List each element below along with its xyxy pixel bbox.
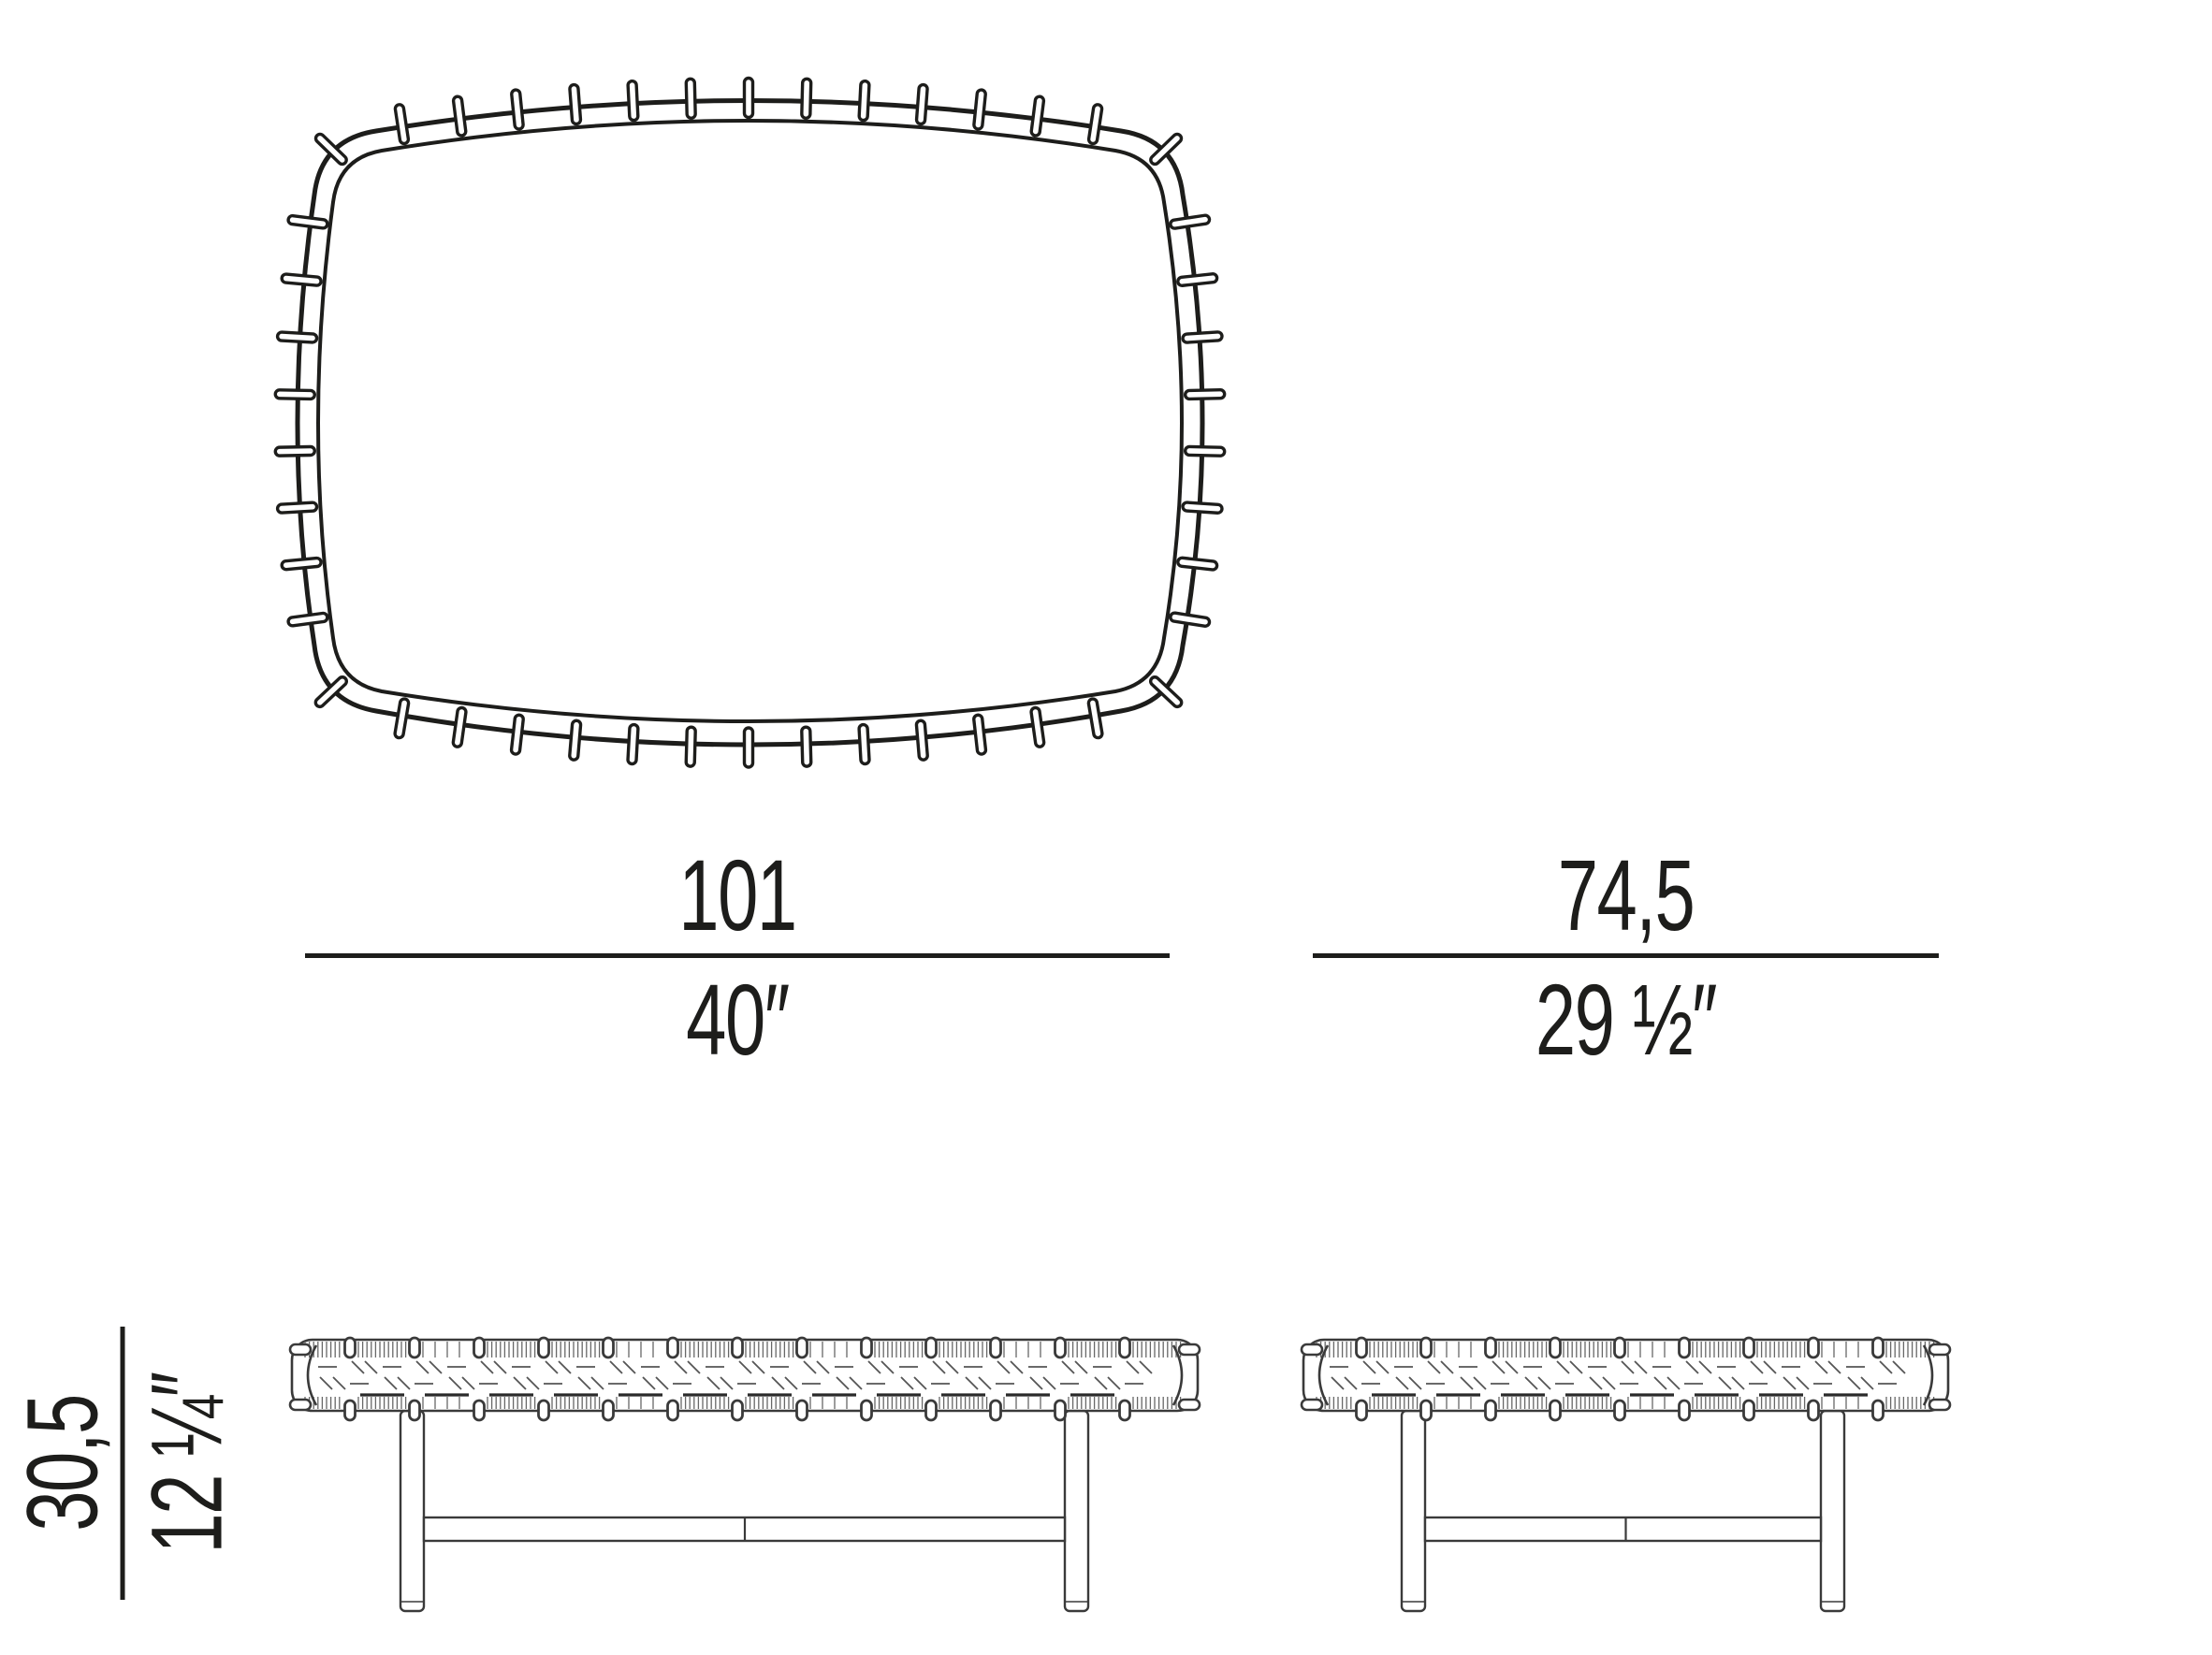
furniture-dimension-diagram: 101 40″ 74,5 29 ½″ 30,5 12 ¼″ <box>0 0 2212 1655</box>
frame-tube <box>275 79 1225 768</box>
depth-imperial-label: 29 ½″ <box>1401 958 1852 1065</box>
depth-dimension: 74,5 29 ½″ <box>1313 850 1939 1065</box>
height-dimension: 30,5 12 ¼″ <box>18 1327 232 1600</box>
depth-metric-label: 74,5 <box>1401 850 1852 953</box>
front-elevation <box>290 1338 1200 1611</box>
frame-inner-contour <box>318 121 1182 721</box>
width-imperial-label: 40″ <box>426 958 1048 1065</box>
width-dimension: 101 40″ <box>305 850 1170 1065</box>
elevation-views-drawing <box>262 1310 1965 1637</box>
width-metric-label: 101 <box>426 850 1048 953</box>
top-view-drawing <box>262 56 1235 777</box>
height-imperial-label: 12 ¼″ <box>125 1365 232 1561</box>
frame-stitch-ticks <box>275 79 1225 768</box>
frame-outer-contour <box>298 101 1202 746</box>
side-elevation <box>1302 1338 1950 1611</box>
height-metric-label: 30,5 <box>18 1365 121 1561</box>
